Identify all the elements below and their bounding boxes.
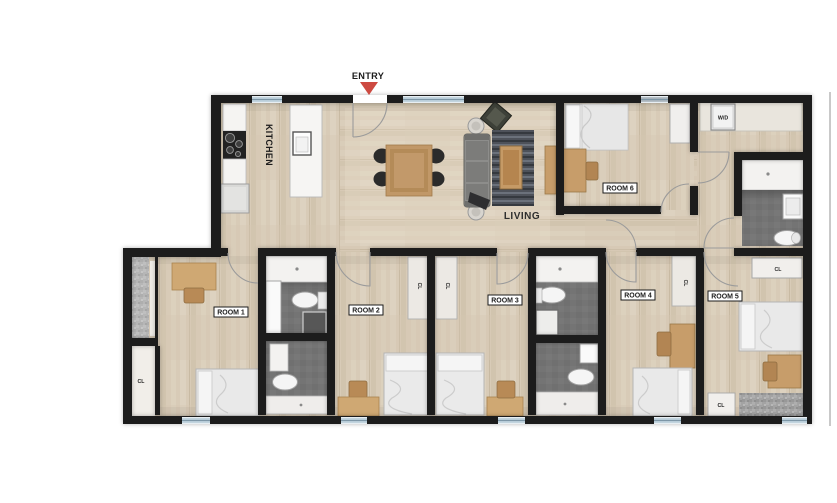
svg-text:ROOM 3: ROOM 3	[491, 298, 519, 305]
svg-text:LIVING: LIVING	[504, 211, 540, 222]
svg-text:KITCHEN: KITCHEN	[264, 124, 274, 166]
svg-text:ROOM 5: ROOM 5	[711, 294, 739, 301]
svg-text:ROOM 4: ROOM 4	[624, 293, 652, 300]
svg-text:ROOM 2: ROOM 2	[352, 308, 380, 315]
svg-text:CL: CL	[775, 267, 783, 273]
svg-text:ENTRY: ENTRY	[352, 71, 384, 81]
svg-text:W/D: W/D	[718, 116, 728, 122]
svg-text:CL: CL	[416, 283, 422, 290]
svg-text:CL: CL	[444, 283, 450, 290]
svg-text:ROOM 1: ROOM 1	[217, 310, 245, 317]
svg-text:CL: CL	[718, 403, 726, 409]
svg-text:CL: CL	[682, 280, 688, 287]
svg-text:CL: CL	[138, 379, 146, 385]
svg-text:ROOM 6: ROOM 6	[606, 186, 634, 193]
